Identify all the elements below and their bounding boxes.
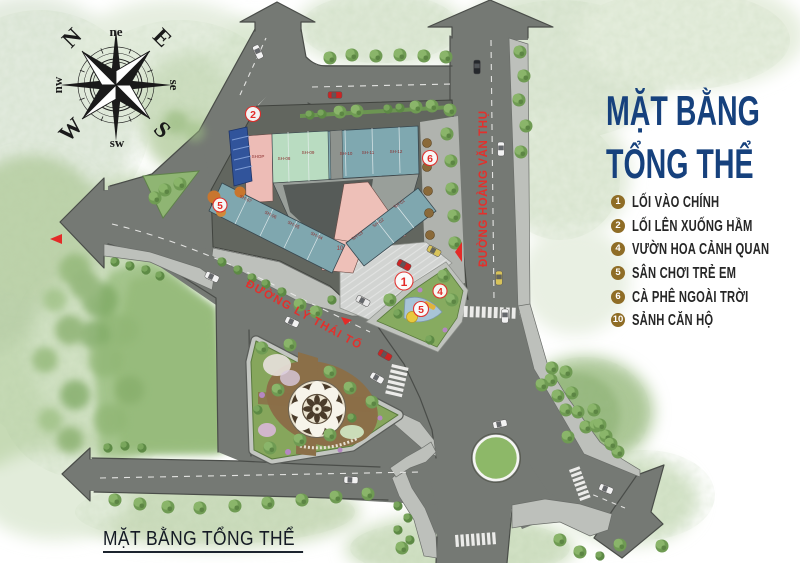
- svg-text:1: 1: [401, 275, 408, 289]
- svg-text:SH-10: SH-10: [340, 151, 353, 156]
- svg-text:ne: ne: [110, 24, 123, 39]
- svg-text:SH-12: SH-12: [390, 149, 403, 154]
- svg-text:5: 5: [217, 201, 223, 212]
- svg-text:4: 4: [437, 287, 443, 298]
- svg-text:10: 10: [337, 246, 344, 252]
- svg-text:ĐƯỜNG HOÀNG VĂN THỤ: ĐƯỜNG HOÀNG VĂN THỤ: [477, 110, 490, 267]
- svg-text:nw: nw: [50, 76, 65, 93]
- svg-text:SH-11: SH-11: [362, 150, 375, 155]
- svg-text:se: se: [167, 80, 182, 91]
- svg-text:SH-09: SH-09: [302, 150, 315, 155]
- svg-text:6: 6: [427, 153, 433, 165]
- svg-text:SHOP: SHOP: [252, 154, 265, 159]
- svg-text:SH-08: SH-08: [278, 156, 291, 161]
- svg-text:sw: sw: [110, 135, 125, 150]
- svg-text:5: 5: [418, 304, 424, 316]
- svg-text:2: 2: [250, 109, 256, 121]
